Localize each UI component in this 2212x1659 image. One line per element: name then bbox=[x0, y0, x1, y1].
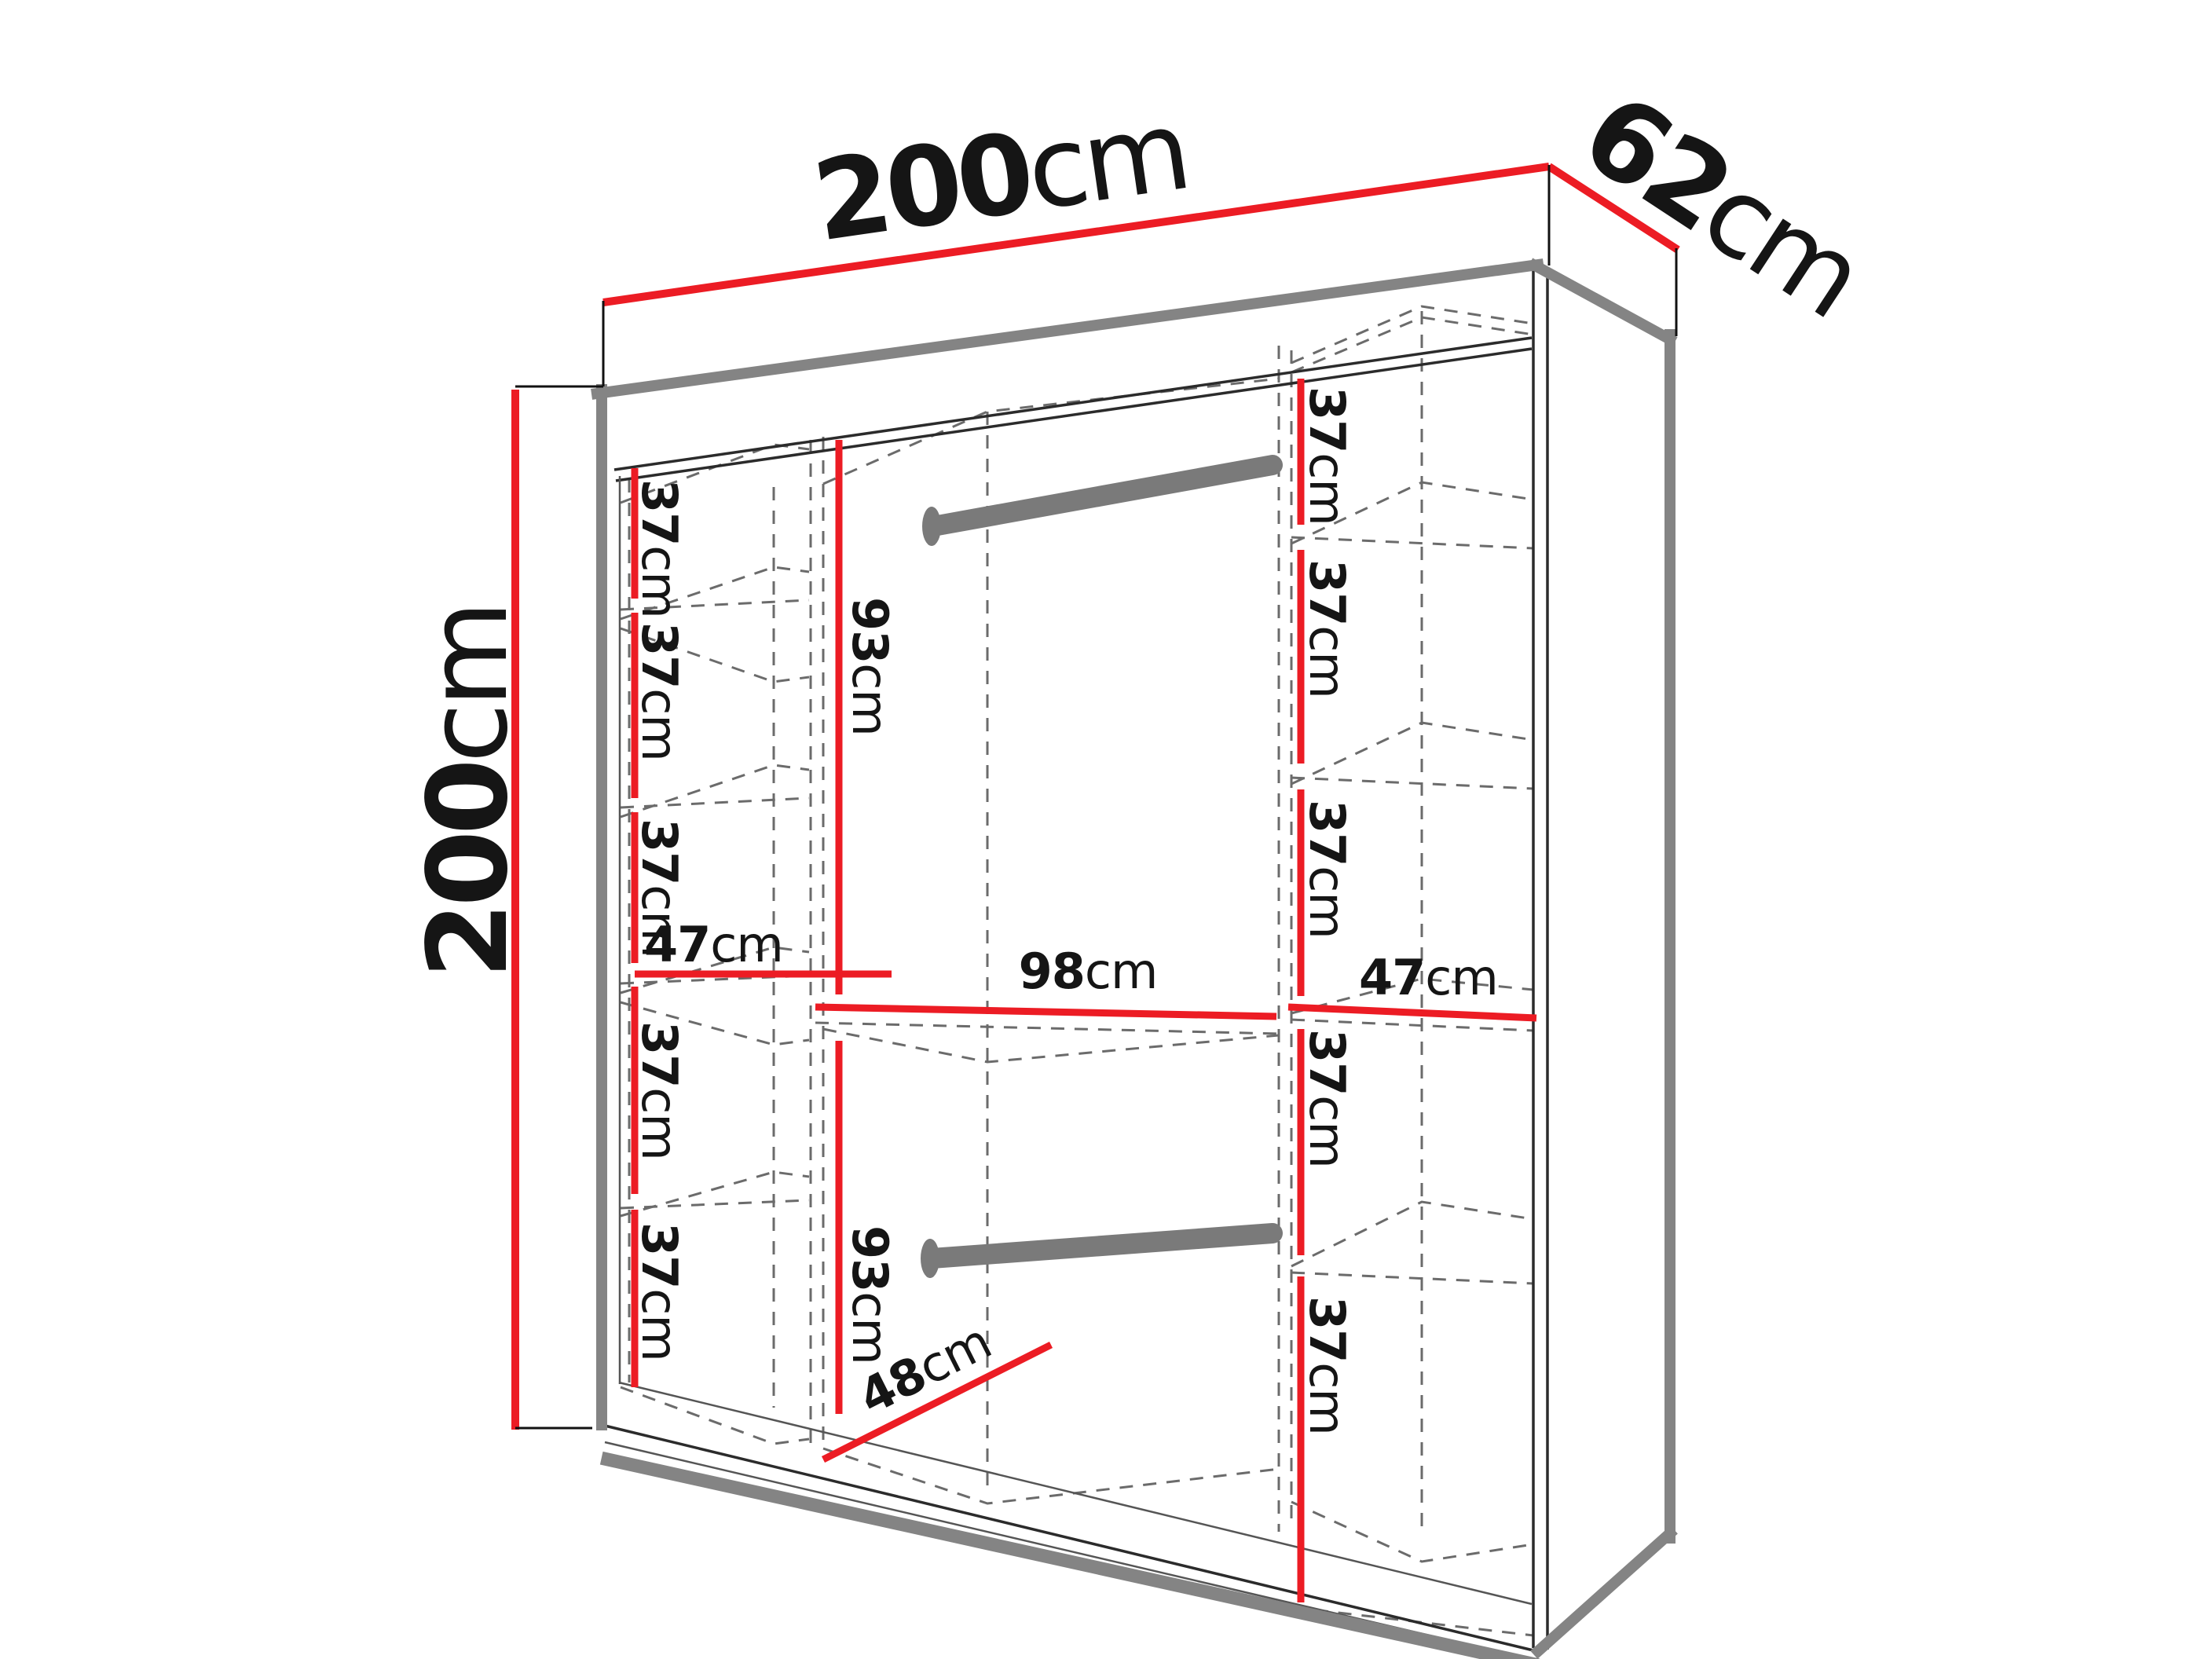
hanging-rods bbox=[921, 465, 1273, 1278]
label-left-shelf-4: 37cm bbox=[631, 1021, 688, 1160]
dimension-labels: 200cm 62cm 200cm 37cm 37cm 37cm 47cm 37c… bbox=[405, 69, 1883, 1435]
label-overall-width: 200cm bbox=[806, 86, 1194, 266]
label-right-col-width: 47cm bbox=[1359, 949, 1498, 1006]
label-left-shelf-2: 37cm bbox=[631, 622, 688, 761]
hidden-edge bbox=[1291, 317, 1533, 372]
hidden-edge bbox=[815, 1023, 1279, 1034]
cabinet-right-panel-bottom-edge bbox=[1538, 1533, 1670, 1651]
label-right-shelf-5: 37cm bbox=[1298, 1296, 1356, 1435]
label-right-shelf-3: 37cm bbox=[1298, 800, 1356, 939]
hidden-edge bbox=[621, 798, 809, 808]
hidden-edge bbox=[1291, 1273, 1533, 1284]
label-mid-upper-height: 93cm bbox=[841, 597, 899, 736]
hidden-edge bbox=[823, 1029, 1279, 1062]
hanging-rod-bottom-endcap bbox=[921, 1239, 939, 1278]
hanging-rod-top-endcap bbox=[922, 507, 941, 546]
hidden-edge bbox=[621, 1172, 809, 1216]
hidden-edge bbox=[621, 765, 809, 817]
label-right-shelf-4: 37cm bbox=[1298, 1029, 1356, 1168]
hanging-rod-bottom bbox=[932, 1233, 1273, 1258]
label-overall-height: 200cm bbox=[405, 605, 533, 979]
hidden-edge bbox=[1291, 537, 1533, 548]
hidden-edge bbox=[1291, 1202, 1533, 1266]
label-left-shelf-1: 37cm bbox=[631, 479, 688, 618]
interior-ceiling-line-a bbox=[614, 338, 1532, 470]
wardrobe-dimension-diagram: 200cm 62cm 200cm 37cm 37cm 37cm 47cm 37c… bbox=[0, 0, 2212, 1659]
label-mid-lower-height: 93cm bbox=[841, 1225, 899, 1364]
label-mid-width: 98cm bbox=[1019, 943, 1158, 1000]
label-left-shelf-5: 37cm bbox=[631, 1222, 688, 1361]
cabinet-right-panel-top-edge bbox=[1535, 266, 1670, 339]
hanging-rod-top bbox=[933, 465, 1273, 526]
label-right-shelf-2: 37cm bbox=[1298, 559, 1356, 698]
hidden-edge bbox=[1291, 778, 1533, 789]
label-left-col-width: 47cm bbox=[644, 916, 783, 973]
bottom-front-edge bbox=[602, 1425, 1536, 1651]
dim-line-mid-width bbox=[815, 1007, 1276, 1016]
cabinet-bottom-shadow bbox=[608, 1459, 1532, 1659]
hidden-edge bbox=[1291, 723, 1533, 784]
dim-line-right-col-width bbox=[1288, 1007, 1536, 1018]
label-right-shelf-1: 37cm bbox=[1298, 386, 1356, 526]
hidden-edge bbox=[1291, 1502, 1533, 1562]
